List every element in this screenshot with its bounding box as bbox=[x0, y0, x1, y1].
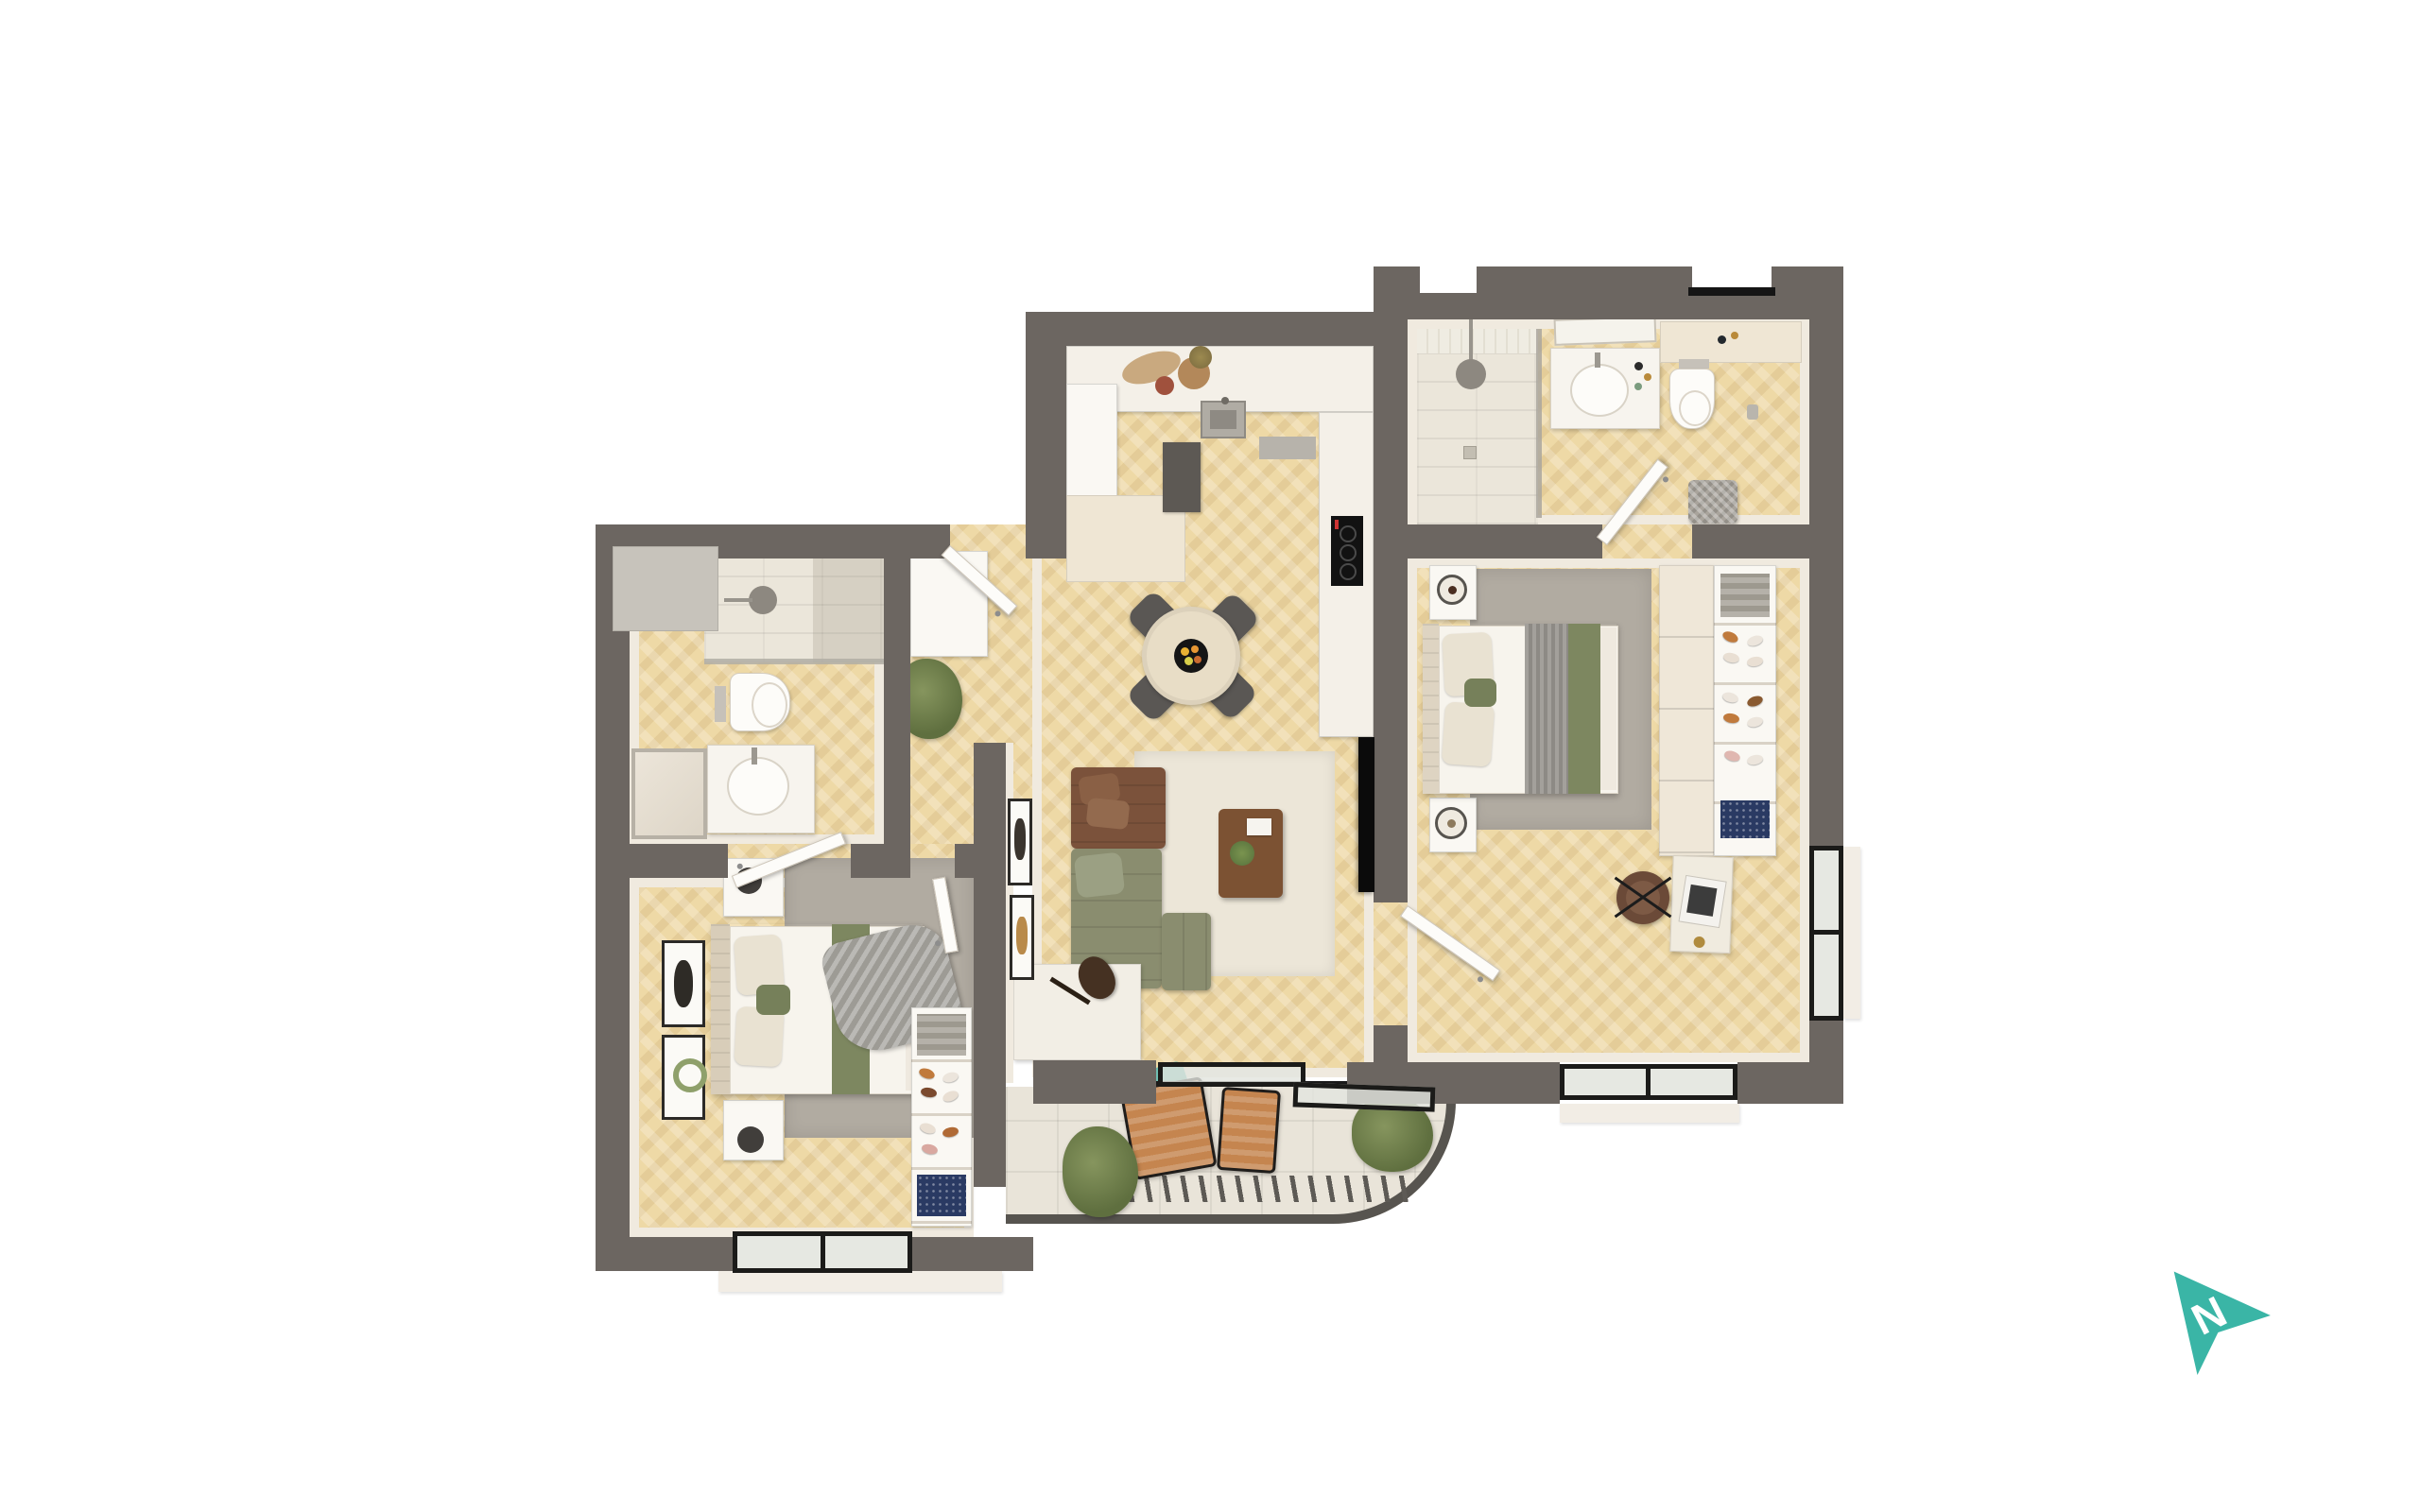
desk bbox=[1669, 855, 1734, 954]
storage-box-blue bbox=[1720, 800, 1770, 838]
facade-notch bbox=[1692, 266, 1772, 289]
runner-grey bbox=[1525, 624, 1568, 794]
shower-glass-screen bbox=[704, 659, 884, 664]
facade-notch bbox=[1420, 266, 1477, 293]
basin bbox=[727, 757, 789, 816]
headboard bbox=[711, 924, 730, 1094]
bedroom1-window bbox=[1560, 1064, 1737, 1100]
wall bbox=[1374, 266, 1408, 558]
cosmetics bbox=[1634, 383, 1642, 390]
ensuite-mirror bbox=[1554, 316, 1657, 346]
plant-pot-decor bbox=[1155, 376, 1174, 395]
toilet bbox=[1669, 369, 1715, 429]
highlevel-window-frame bbox=[1688, 287, 1775, 296]
pillow bbox=[734, 1006, 784, 1068]
wall bbox=[884, 524, 910, 878]
coffee-table bbox=[1219, 809, 1283, 898]
wall-tv bbox=[1358, 737, 1374, 892]
window-sill bbox=[1843, 847, 1860, 1019]
shower-drain bbox=[1463, 446, 1477, 459]
toilet-flush-plate bbox=[1679, 359, 1709, 369]
ensuite-ceiling-slats bbox=[1417, 329, 1538, 353]
laundry-basket bbox=[1688, 480, 1737, 524]
wall bbox=[912, 1237, 1033, 1271]
toilet-paper-holder bbox=[1747, 404, 1758, 420]
faucet bbox=[752, 747, 757, 765]
bathroom-vanity bbox=[707, 745, 815, 833]
bed bbox=[1423, 624, 1616, 794]
balcony-plant bbox=[1063, 1126, 1138, 1217]
cosmetics bbox=[1731, 332, 1738, 339]
wall bbox=[1737, 1062, 1843, 1104]
shower-glass-screen bbox=[1536, 329, 1542, 518]
floor-plan: N bbox=[0, 0, 2420, 1512]
laptop bbox=[1678, 875, 1726, 928]
art-frame bbox=[662, 940, 705, 1027]
cosmetics bbox=[1634, 362, 1643, 370]
wall bbox=[1692, 524, 1809, 558]
side-tray bbox=[1435, 807, 1467, 839]
bedroom1-side-window bbox=[1809, 846, 1843, 1021]
shower-dark-tiles bbox=[813, 558, 884, 662]
wall bbox=[1033, 1060, 1156, 1104]
window-sill bbox=[1560, 1104, 1739, 1123]
cosmetics bbox=[1718, 335, 1726, 344]
wall bbox=[630, 844, 728, 878]
basin bbox=[1570, 364, 1629, 417]
north-label: N bbox=[2184, 1285, 2235, 1345]
footboard bbox=[1600, 627, 1616, 790]
wall bbox=[1408, 524, 1602, 558]
wall bbox=[1374, 558, 1408, 902]
ensuite-vanity bbox=[1550, 348, 1660, 429]
shower-head bbox=[749, 586, 777, 614]
kitchen-sink bbox=[1201, 401, 1246, 438]
window-sill bbox=[718, 1271, 1002, 1292]
storage-box-blue bbox=[917, 1175, 966, 1216]
dishwasher bbox=[1259, 437, 1316, 459]
pillow-green bbox=[756, 985, 790, 1015]
faucet bbox=[1595, 352, 1600, 368]
side-tray bbox=[1437, 575, 1467, 605]
wall bbox=[1374, 1025, 1408, 1062]
table-lamp bbox=[737, 1126, 764, 1153]
pillow-sage bbox=[1074, 852, 1125, 899]
railing-balusters bbox=[1112, 1176, 1412, 1202]
art-frame bbox=[662, 1035, 705, 1120]
induction-hob bbox=[1331, 516, 1363, 586]
fridge bbox=[1066, 384, 1117, 508]
shower-stem bbox=[1469, 319, 1473, 365]
wall bbox=[596, 1237, 733, 1271]
art-frame bbox=[1010, 895, 1034, 980]
coffee-table-book bbox=[1247, 818, 1271, 835]
toilet bbox=[730, 673, 790, 731]
dried-flower-decor bbox=[1189, 346, 1212, 369]
coffee-table-plant bbox=[1230, 841, 1254, 866]
headboard bbox=[1423, 624, 1439, 794]
wall bbox=[974, 743, 1006, 1187]
shower-head bbox=[1456, 359, 1486, 389]
wall bbox=[1032, 312, 1374, 346]
north-arrow: N bbox=[2163, 1259, 2301, 1400]
pillow-green bbox=[1464, 679, 1496, 707]
threshold-bedroom1-door bbox=[1374, 902, 1408, 1025]
floor-shower-ensuite bbox=[1417, 329, 1538, 524]
sun-lounger bbox=[1217, 1087, 1281, 1174]
shoe-shelf-unit bbox=[1714, 565, 1776, 856]
runner-green bbox=[1568, 624, 1600, 794]
oven bbox=[1163, 442, 1201, 512]
shelf-unit-shoes bbox=[911, 1007, 972, 1227]
desk-lamp bbox=[1693, 936, 1704, 948]
towel-stack bbox=[1720, 574, 1770, 617]
wall bbox=[596, 524, 630, 1271]
cosmetics bbox=[1644, 373, 1651, 381]
office-chair bbox=[1616, 871, 1669, 924]
pillow-brown bbox=[1086, 798, 1131, 830]
shower-arm bbox=[724, 598, 752, 602]
sofa-ottoman bbox=[1162, 913, 1211, 990]
balcony-sliding-door bbox=[1158, 1062, 1305, 1087]
bedroom2-window bbox=[733, 1231, 912, 1273]
leaning-mirror bbox=[631, 748, 707, 839]
wardrobe bbox=[1659, 565, 1714, 856]
entry-closet bbox=[910, 551, 988, 657]
pillow bbox=[1442, 701, 1495, 766]
towel-stack bbox=[917, 1014, 966, 1056]
balcony-sliding-door bbox=[1293, 1082, 1436, 1111]
ensuite-shelf bbox=[1660, 321, 1802, 363]
toilet-flush-plate bbox=[715, 686, 726, 722]
wall bbox=[1026, 312, 1066, 558]
art-frame bbox=[1008, 799, 1032, 885]
fruit-bowl bbox=[1174, 639, 1208, 673]
utility-shaft bbox=[613, 546, 718, 631]
